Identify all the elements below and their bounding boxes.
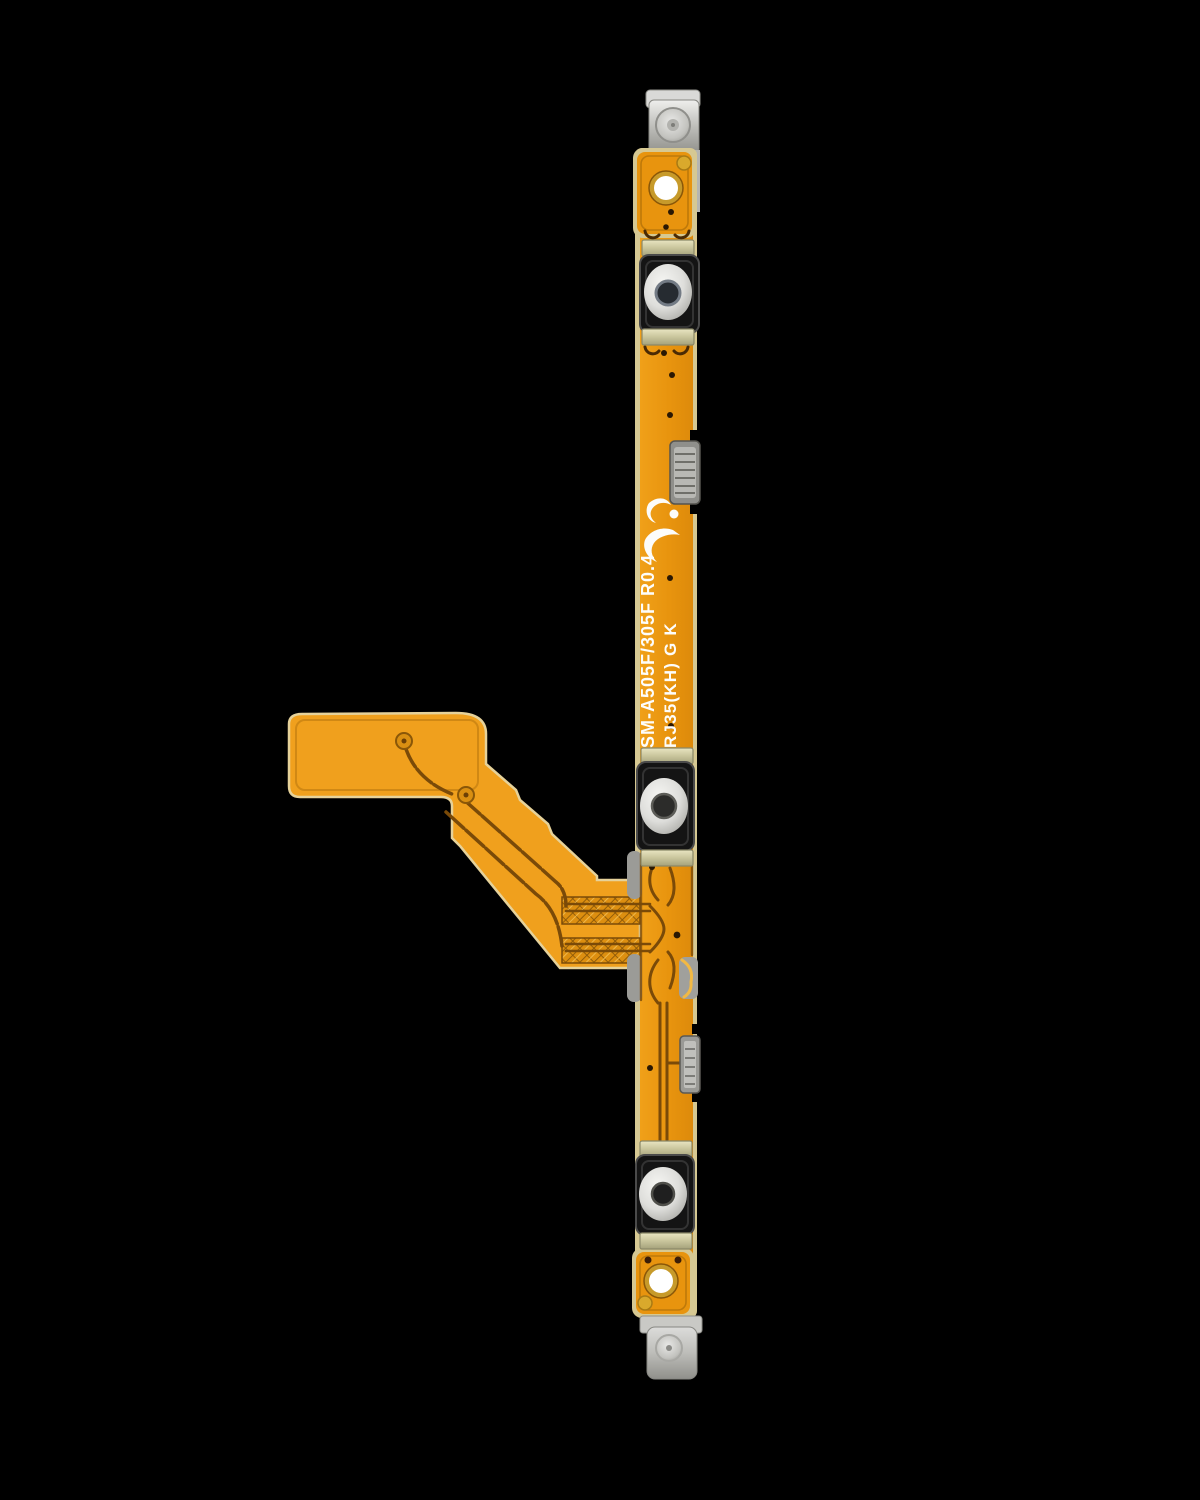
flex-cable-photo: SM-A505F/305F R0.4 RJ35(KH) G K bbox=[0, 0, 1200, 1500]
top-screw-pad bbox=[633, 148, 696, 238]
switch-plunger bbox=[652, 794, 676, 818]
solder-clip bbox=[642, 240, 694, 256]
tactile-switch-top bbox=[640, 240, 699, 345]
switch-plunger bbox=[656, 281, 680, 305]
solder-clip bbox=[641, 850, 693, 866]
metal-mounting-bracket-bottom bbox=[640, 1316, 702, 1379]
bottom-screw-pad bbox=[632, 1248, 694, 1318]
tactile-switch-bottom bbox=[636, 1141, 694, 1249]
product-photo-canvas: SM-A505F/305F R0.4 RJ35(KH) G K bbox=[0, 0, 1200, 1500]
marking-model-text: SM-A505F/305F R0.4 bbox=[638, 554, 658, 748]
solder-clip bbox=[640, 1233, 692, 1249]
spring-contact-upper bbox=[670, 430, 700, 514]
gold-pad-bottom bbox=[638, 1296, 652, 1310]
gold-pad-top bbox=[677, 156, 691, 170]
flex-connector-tail bbox=[289, 713, 650, 968]
screw-hole-bottom bbox=[649, 1269, 673, 1293]
switch-plunger bbox=[652, 1183, 674, 1205]
tactile-switch-middle bbox=[637, 748, 694, 866]
spring-contact-lower bbox=[680, 1024, 700, 1102]
screw-hole-top bbox=[654, 176, 678, 200]
marking-rev-text: RJ35(KH) G K bbox=[661, 622, 680, 748]
solder-clip bbox=[642, 329, 694, 345]
